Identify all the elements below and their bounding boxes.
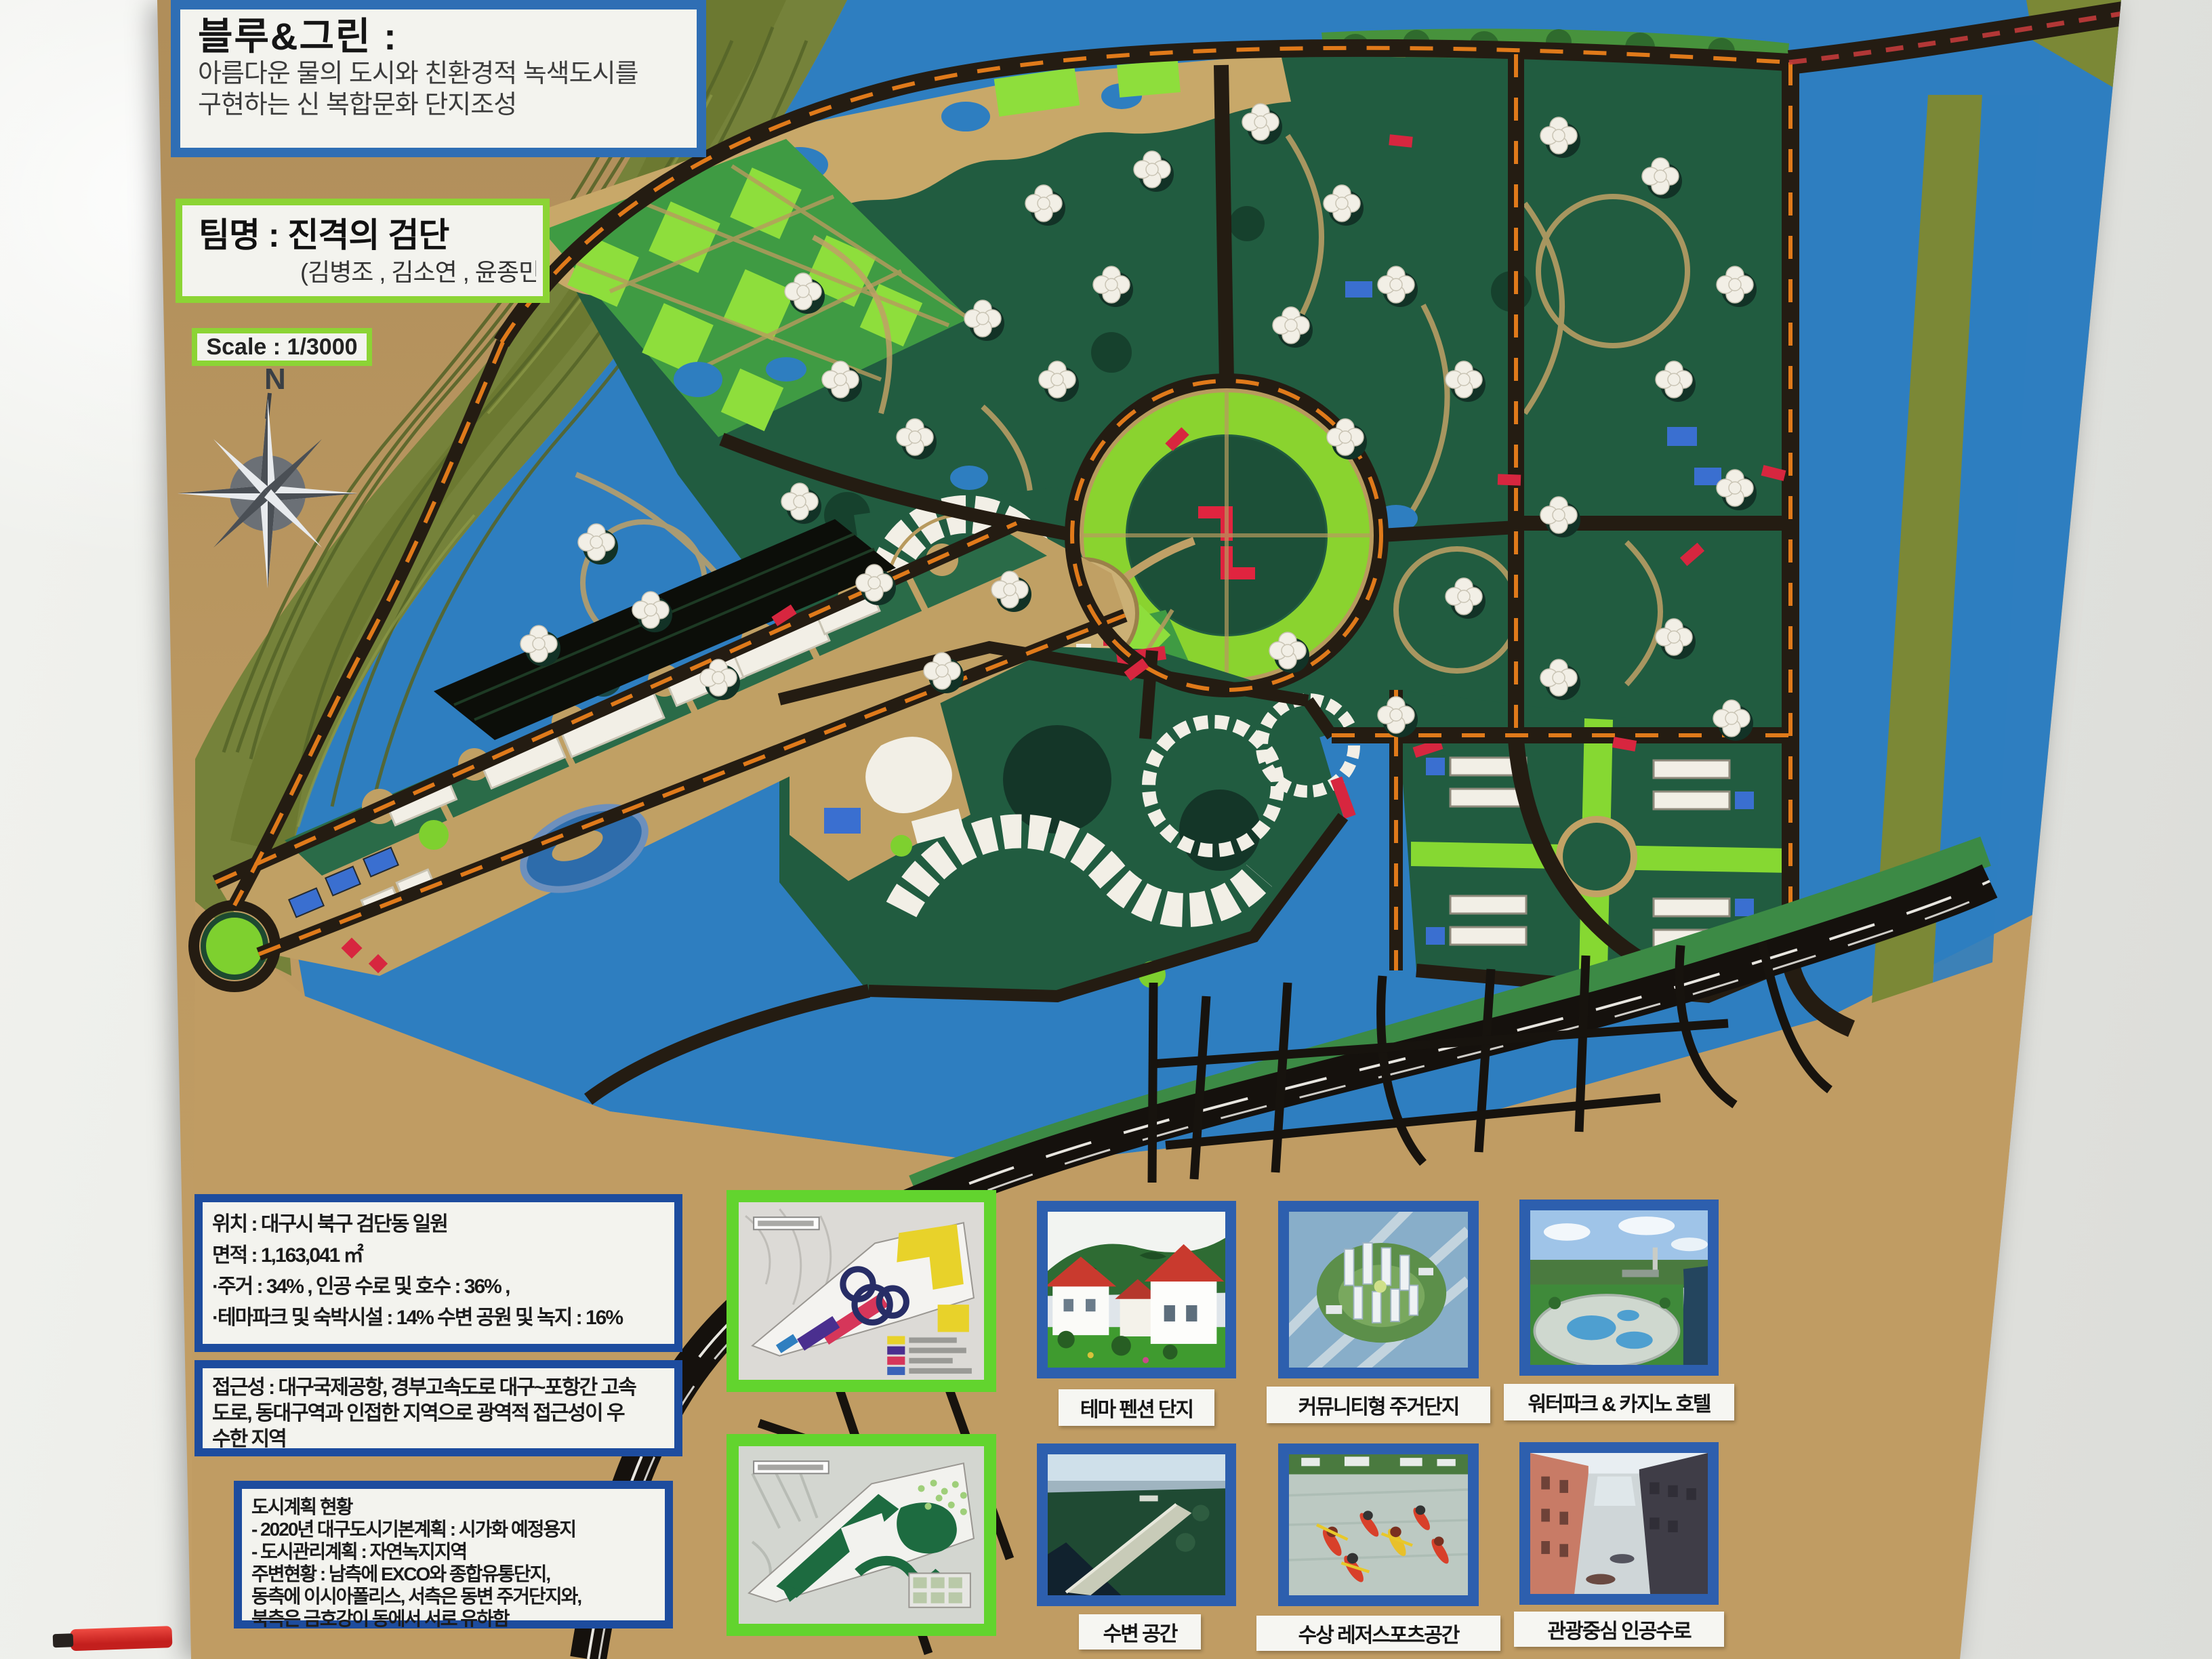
- urban-line6: 북측은 금호강이 동에서 서로 유하함: [251, 1607, 655, 1630]
- access-line2: 도로, 동대구역과 인접한 지역으로 광역적 접근성이 우: [212, 1401, 665, 1427]
- urban-line5: 동측에 이시아폴리스, 서측은 동변 주거단지와,: [251, 1585, 655, 1607]
- team-box: 팀명 : 진격의 검단 (김병조 , 김소연 , 윤종민): [176, 199, 550, 303]
- urban-line4: 주변현황 : 남측에 EXCO와 종합유통단지,: [251, 1563, 655, 1585]
- project-title: 블루&그린 :: [198, 15, 683, 58]
- urban-line2: - 2020년 대구도시기본계획 : 시가화 예정용지: [251, 1518, 655, 1540]
- caption-waterpark-hotel: 워터파크 & 카지노 호텔: [1504, 1384, 1734, 1420]
- project-subtitle-line1: 아름다운 물의 도시와 친환경적 녹색도시를: [198, 58, 683, 89]
- info-box-access: 접근성 : 대구국제공항, 경부고속도로 대구~포항간 고속 도로, 동대구역과…: [194, 1360, 682, 1456]
- marker-tip: [53, 1633, 74, 1647]
- ratio-line1: ·주거 : 34% , 인공 수로 및 호수 : 36% ,: [212, 1271, 665, 1303]
- caption-community-housing: 커뮤니티형 주거단지: [1267, 1387, 1490, 1423]
- scale-label: Scale : 1/3000: [206, 334, 357, 361]
- photo-theme-pension: [1037, 1201, 1236, 1378]
- whiteboard-background: 블루&그린 : 아름다운 물의 도시와 친환경적 녹색도시를 구현하는 신 복합…: [0, 0, 2212, 1659]
- compass-rose-icon: N: [178, 358, 367, 602]
- team-name: 팀명 : 진격의 검단: [199, 215, 536, 255]
- caption-water-leisure: 수상 레저스포츠공간: [1256, 1616, 1500, 1651]
- red-marker-pen: [52, 1622, 178, 1656]
- greenspace-diagram: [726, 1434, 996, 1636]
- access-line1: 접근성 : 대구국제공항, 경부고속도로 대구~포항간 고속: [212, 1375, 665, 1401]
- caption-theme-pension: 테마 펜션 단지: [1059, 1389, 1214, 1426]
- ratio-line2: ·테마파크 및 숙박시설 : 14% 수변 공원 및 녹지 : 16%: [212, 1303, 665, 1334]
- area-line: 면적 : 1,163,041 ㎡: [212, 1240, 665, 1271]
- marker-body: [70, 1626, 172, 1651]
- board-wrapper: 블루&그린 : 아름다운 물의 도시와 친환경적 녹색도시를 구현하는 신 복합…: [0, 0, 2212, 1659]
- compass-north-label: N: [264, 363, 286, 396]
- landuse-diagram: [726, 1190, 996, 1392]
- location-line: 위치 : 대구시 북구 검단동 일원: [212, 1209, 665, 1240]
- photo-canal: [1519, 1442, 1719, 1605]
- photo-waterfront: [1037, 1443, 1236, 1606]
- caption-canal: 관광중심 인공수로: [1514, 1612, 1724, 1647]
- landuse-diagram-sketch: [739, 1202, 984, 1380]
- caption-waterfront: 수변 공간: [1079, 1614, 1201, 1650]
- access-line3: 수한 지역: [212, 1427, 665, 1452]
- urban-line3: - 도시관리계획 : 자연녹지지역: [251, 1540, 655, 1563]
- greenspace-diagram-sketch: [739, 1446, 984, 1624]
- photo-waterpark-hotel: [1519, 1200, 1719, 1376]
- photo-community-housing: [1278, 1201, 1479, 1378]
- photo-water-leisure: [1278, 1443, 1479, 1606]
- project-subtitle-line2: 구현하는 신 복합문화 단지조성: [198, 89, 683, 121]
- info-box-urban-plan: 도시계획 현황 - 2020년 대구도시기본계획 : 시가화 예정용지 - 도시…: [234, 1481, 673, 1629]
- urban-line1: 도시계획 현황: [251, 1496, 655, 1518]
- info-box-location: 위치 : 대구시 북구 검단동 일원 면적 : 1,163,041 ㎡ ·주거 …: [194, 1194, 682, 1352]
- title-box: 블루&그린 : 아름다운 물의 도시와 친환경적 녹색도시를 구현하는 신 복합…: [171, 0, 706, 157]
- team-members: (김병조 , 김소연 , 윤종민): [199, 255, 536, 289]
- presentation-board: 블루&그린 : 아름다운 물의 도시와 친환경적 녹색도시를 구현하는 신 복합…: [0, 0, 2212, 1659]
